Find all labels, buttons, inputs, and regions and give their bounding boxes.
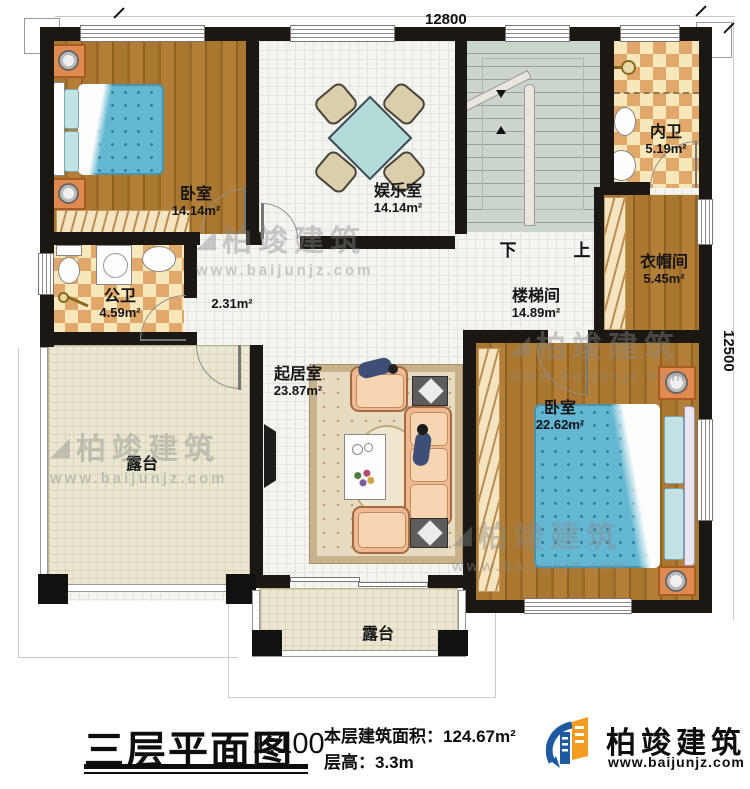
bed-sheet	[78, 84, 120, 175]
wall-segment	[600, 182, 650, 195]
watermark-url: www.baijunjz.com	[196, 262, 373, 279]
parapet	[40, 347, 48, 587]
watermark-title: 柏竣建筑	[478, 512, 622, 556]
setback-line-bottom-left	[18, 657, 238, 658]
room-name: 起居室	[274, 366, 322, 384]
person-head	[388, 364, 398, 374]
company-logo-icon	[546, 712, 600, 772]
room-name: 衣帽间	[640, 254, 688, 272]
dimension-line-right	[733, 20, 734, 620]
room-label-bedroom2: 卧室 22.62m²	[536, 400, 584, 432]
window	[697, 199, 713, 245]
wall-segment	[250, 345, 263, 575]
room-area: 22.62m²	[536, 418, 584, 433]
bed-pillow	[664, 488, 684, 560]
table-item	[352, 444, 363, 455]
wall-segment	[250, 575, 290, 588]
person-head	[417, 424, 428, 435]
watermark-title: 柏竣建筑	[76, 424, 220, 468]
room-area: 5.45m²	[640, 272, 688, 287]
watermark-url: www.baijunjz.com	[510, 368, 687, 385]
watermark-logo-icon: ◢	[50, 431, 70, 462]
watermark: ◢柏竣建筑 www.baijunjz.com	[196, 216, 373, 279]
wall-segment	[476, 600, 524, 613]
shower-partition	[604, 92, 699, 94]
stair-down-label: 下	[500, 236, 517, 261]
wall-segment	[699, 521, 712, 613]
floor-height-value: 3.3m	[375, 753, 414, 772]
room-label-cloakroom: 衣帽间 5.45m²	[640, 254, 688, 286]
title-underline	[84, 772, 308, 774]
room-name: 露台	[362, 626, 394, 644]
setback-line-left	[18, 348, 19, 658]
wall-segment	[246, 27, 259, 245]
window	[505, 25, 570, 42]
sliding-door-panel	[358, 582, 428, 587]
watermark: ◢柏竣建筑 www.baijunjz.com	[50, 424, 227, 487]
wall-segment	[699, 245, 712, 419]
watermark-url: www.baijunjz.com	[452, 558, 629, 575]
wall-segment	[600, 27, 614, 187]
toilet-tank	[56, 245, 82, 256]
room-label-stairwell: 楼梯间 14.89m²	[512, 288, 560, 320]
bedroom1-wardrobe	[56, 210, 190, 233]
door-leaf	[141, 339, 186, 341]
room-area: 14.14m²	[374, 201, 422, 216]
room-name: 内卫	[645, 124, 686, 142]
window	[290, 25, 395, 42]
toilet-bowl	[614, 107, 636, 136]
sofa-cushion	[410, 484, 448, 520]
watermark-logo-icon: ◢	[510, 329, 530, 360]
stair-direction-arrow	[496, 90, 506, 98]
room-name: 公卫	[99, 288, 140, 306]
armchair-cushion	[356, 374, 404, 408]
shower-head	[621, 60, 636, 75]
window	[697, 419, 713, 521]
armchair-cushion	[358, 512, 406, 548]
floor-area-label: 本层建筑面积：	[324, 727, 443, 746]
watermark-title: 柏竣建筑	[222, 216, 366, 260]
floor-area-value: 124.67m²	[443, 727, 516, 746]
floor-height-row: 层高：3.3m	[324, 748, 414, 773]
bed-pillow	[64, 131, 79, 172]
stair-handrail	[524, 84, 535, 226]
dimension-top: 12800	[425, 11, 467, 28]
window	[524, 598, 632, 614]
watermark-title: 柏竣建筑	[536, 322, 680, 366]
table-lamp	[58, 183, 79, 204]
toilet-bowl	[58, 257, 80, 284]
room-label-inner-bath: 内卫 5.19m²	[645, 124, 686, 156]
watermark: ◢柏竣建筑 www.baijunjz.com	[510, 322, 687, 385]
dimension-line-top	[55, 16, 735, 17]
wall-segment	[455, 27, 467, 234]
wall-segment	[632, 600, 699, 613]
bed-pillow	[64, 89, 79, 129]
sink	[142, 246, 176, 272]
washer-drum	[103, 253, 128, 278]
column	[252, 630, 282, 656]
company-logo-url: www.baijunjz.com	[608, 754, 745, 770]
wall-segment	[699, 27, 712, 199]
window	[38, 253, 54, 295]
room-name: 娱乐室	[374, 183, 422, 201]
room-label-living: 起居室 23.87m²	[274, 366, 322, 398]
flower-bouquet	[350, 466, 376, 490]
room-label-terrace-bottom: 露台	[362, 626, 394, 644]
floor-height-label: 层高：	[324, 753, 375, 772]
bed-headboard	[684, 406, 695, 566]
room-name: 卧室	[172, 186, 220, 204]
floor-plan-sheet: 卧室 14.14m² 娱乐室 14.14m² 内卫 5.19m² 衣帽间 5.4…	[0, 0, 750, 789]
room-label-entertainment: 娱乐室 14.14m²	[374, 183, 422, 215]
room-area: 4.59m²	[99, 306, 140, 321]
watermark-logo-icon: ◢	[452, 519, 472, 550]
wall-segment	[40, 27, 54, 253]
watermark: ◢柏竣建筑 www.baijunjz.com	[452, 512, 629, 575]
dimension-right: 12500	[720, 330, 737, 372]
door-leaf	[238, 345, 241, 390]
room-name: 卧室	[536, 400, 584, 418]
window	[80, 25, 205, 42]
room-area: 23.87m²	[274, 384, 322, 399]
floor-terrace-bottom	[260, 588, 458, 654]
window	[620, 25, 680, 42]
tv	[264, 424, 276, 488]
watermark-url: www.baijunjz.com	[50, 470, 227, 487]
dim-tick	[695, 5, 706, 16]
wall-segment	[594, 187, 604, 332]
parapet	[252, 650, 466, 657]
watermark-logo-icon: ◢	[196, 223, 216, 254]
title-underline	[84, 764, 308, 769]
wall-segment	[428, 575, 463, 588]
parapet	[44, 584, 236, 592]
column	[38, 574, 68, 604]
room-label-public-bath: 公卫 4.59m²	[99, 288, 140, 320]
sliding-door-panel	[290, 577, 360, 582]
table-lamp	[58, 50, 79, 71]
hallway-area-label: 2.31m²	[211, 296, 252, 311]
wall-segment	[395, 27, 505, 41]
room-area: 5.19m²	[645, 142, 686, 157]
floor-area-row: 本层建筑面积：124.67m²	[324, 722, 516, 747]
bed-pillow	[664, 416, 684, 484]
cloakroom-closet	[604, 197, 626, 330]
room-label-bedroom1: 卧室 14.14m²	[172, 186, 220, 218]
room-name: 楼梯间	[512, 288, 560, 306]
room-area: 14.89m²	[512, 306, 560, 321]
table-item	[364, 443, 373, 452]
plan-scale: 1:100	[252, 728, 325, 761]
table-lamp	[665, 570, 687, 592]
stair-direction-arrow	[496, 126, 506, 134]
stair-up-label: 上	[574, 236, 591, 261]
wall-segment	[40, 232, 200, 245]
column	[438, 630, 468, 656]
door-leaf	[695, 141, 697, 188]
